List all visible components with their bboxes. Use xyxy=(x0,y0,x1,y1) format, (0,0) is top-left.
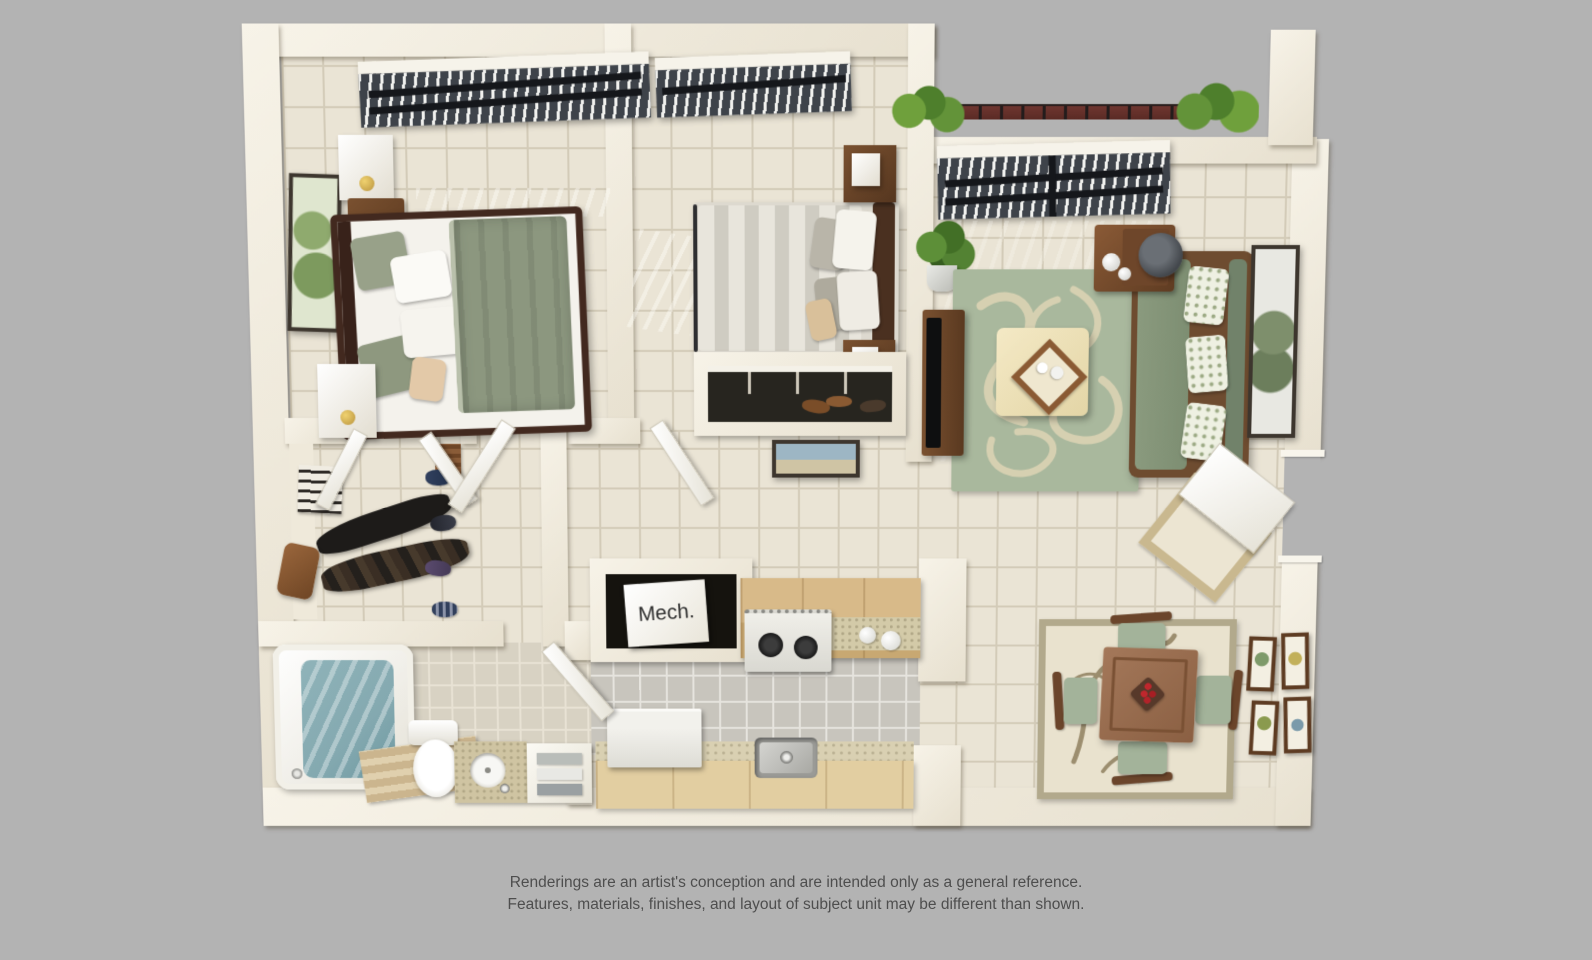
faucet xyxy=(780,751,793,764)
closet-divider xyxy=(748,372,751,394)
wall-closet-right xyxy=(540,418,569,647)
dining-chair xyxy=(1118,741,1168,774)
sofa-back-cushion xyxy=(1224,259,1247,469)
mech-label: Mech. xyxy=(623,579,709,647)
balcony-plant-right xyxy=(1169,79,1259,135)
entry-door-frame xyxy=(1278,556,1322,563)
pillow-white xyxy=(832,209,877,271)
balcony-plant-left xyxy=(885,81,965,134)
gallery-print xyxy=(1281,632,1309,689)
closet-slider-track xyxy=(708,366,892,372)
comforter xyxy=(448,216,575,413)
table-lamp xyxy=(359,176,374,191)
wall-closet-bath xyxy=(258,621,504,646)
gallery-print xyxy=(1283,697,1311,754)
mech-closet: Mech. xyxy=(590,558,753,662)
floor-plan-scene: Mech. xyxy=(0,0,1592,960)
sink-drain xyxy=(485,767,491,773)
dining-table xyxy=(1099,647,1198,743)
bathroom-vanity xyxy=(454,741,528,803)
kitchen-sink xyxy=(755,738,818,778)
entry-door-frame xyxy=(1281,450,1325,457)
mech-unit-box: Mech. xyxy=(623,579,709,647)
cup xyxy=(1048,364,1066,382)
bedroom2-closet xyxy=(694,352,907,436)
closet-interior xyxy=(708,366,892,422)
gallery-print xyxy=(1249,700,1280,755)
ottoman-coffee-table xyxy=(996,328,1089,416)
bedroom1-window xyxy=(358,51,651,127)
balcony-pillar xyxy=(1268,30,1316,145)
disclaimer-line2: Features, materials, finishes, and layou… xyxy=(0,894,1592,916)
vanity-sink xyxy=(470,753,506,788)
window-mullion xyxy=(1049,155,1057,216)
wall-kitchen-stub-bottom xyxy=(913,745,961,826)
seascape-picture xyxy=(776,444,856,474)
serving-tray xyxy=(1011,339,1087,415)
bedroom2-bed xyxy=(693,202,899,354)
disclaimer-line1: Renderings are an artist's conception an… xyxy=(0,872,1592,894)
canister xyxy=(859,627,876,644)
shoes xyxy=(859,399,886,414)
botanical-sketch xyxy=(1285,636,1305,685)
sofa-pillow-floral xyxy=(1185,334,1229,393)
botanical-sketch xyxy=(1250,640,1272,687)
faucet xyxy=(500,784,510,794)
closet-divider xyxy=(796,372,799,394)
living-room-window xyxy=(937,140,1171,220)
hallway-wall-art xyxy=(772,440,860,478)
living-room-wall-art xyxy=(1247,245,1300,438)
table-lamp xyxy=(340,410,355,425)
apartment-3d-plan: Mech. xyxy=(0,0,1592,944)
toilet-bowl xyxy=(413,739,459,797)
botanical-picture xyxy=(292,177,338,328)
bedroom1-cube-shelf xyxy=(338,135,394,200)
canister xyxy=(881,631,901,650)
pillow-white xyxy=(836,270,880,331)
folded-towels xyxy=(537,784,582,796)
shoes xyxy=(826,396,852,407)
dining-chair xyxy=(1063,678,1097,724)
disclaimer-text: Renderings are an artist's conception an… xyxy=(0,872,1592,917)
refrigerator xyxy=(607,709,702,768)
burner xyxy=(794,636,818,659)
wall-kitchen-stub-top xyxy=(918,558,966,681)
pillow-accent xyxy=(408,356,447,402)
shoes xyxy=(432,602,458,618)
pillow-white xyxy=(389,249,453,304)
folded-towels xyxy=(537,753,582,765)
decor-sphere xyxy=(1102,253,1120,271)
cube-lamp xyxy=(852,153,880,186)
bedroom2-nightstand-top xyxy=(844,145,897,202)
burner xyxy=(758,633,783,657)
bedroom1-nightstand-cube xyxy=(317,364,377,438)
wall-bath-right-a xyxy=(565,621,591,660)
dining-chair xyxy=(1195,676,1232,724)
bedroom2-window xyxy=(655,51,852,118)
cup xyxy=(1035,360,1051,376)
stove xyxy=(744,609,831,671)
tv-screen xyxy=(926,318,942,448)
tv-console xyxy=(922,310,965,456)
tub-faucet xyxy=(292,768,303,779)
botanical-picture xyxy=(1251,249,1296,434)
closet-divider xyxy=(844,372,847,394)
linen-cabinet xyxy=(527,743,592,803)
wall-right-lower xyxy=(1275,558,1317,825)
folded-towels xyxy=(537,768,582,780)
metal-footboard xyxy=(693,204,698,352)
botanical-sketch xyxy=(1253,704,1275,751)
botanical-sketch xyxy=(1287,701,1307,750)
gallery-print xyxy=(1246,636,1277,691)
sofa-pillow-floral xyxy=(1183,265,1230,325)
